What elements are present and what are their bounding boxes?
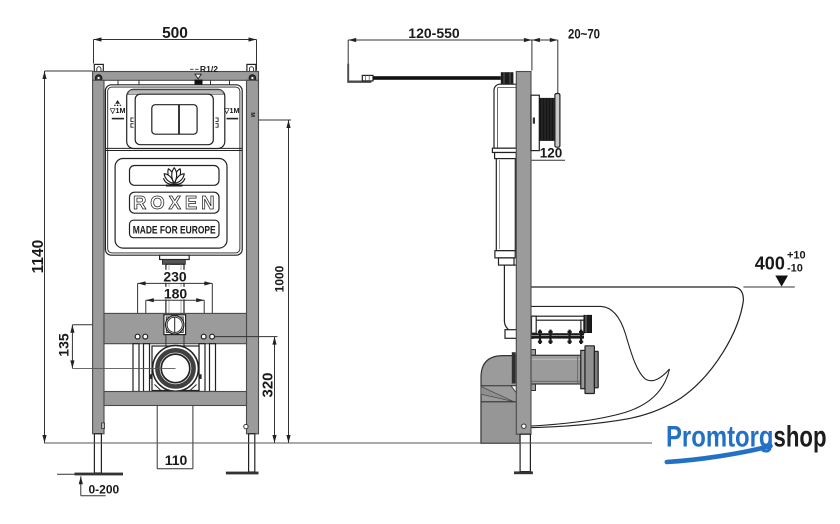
svg-text:shop: shop	[774, 420, 827, 453]
svg-text:+10: +10	[787, 249, 806, 261]
svg-text:ROXEN: ROXEN	[133, 192, 218, 213]
svg-text:135: 135	[56, 333, 72, 357]
svg-text:R1/2: R1/2	[200, 64, 218, 74]
svg-text:320: 320	[260, 372, 277, 397]
svg-text:▽1M: ▽1M	[109, 106, 126, 115]
svg-text:180: 180	[164, 285, 188, 301]
svg-text:0-200: 0-200	[89, 482, 120, 496]
svg-text:M: M	[249, 112, 255, 117]
svg-text:120: 120	[540, 146, 563, 161]
svg-text:20~70: 20~70	[568, 26, 600, 42]
svg-text:400: 400	[755, 254, 785, 274]
svg-text:▽1M: ▽1M	[223, 106, 240, 115]
svg-text:MADE FOR EUROPE: MADE FOR EUROPE	[133, 224, 216, 236]
svg-text:110: 110	[165, 452, 188, 468]
svg-text:1000: 1000	[273, 265, 287, 292]
svg-text:-10: -10	[787, 262, 803, 274]
svg-text:120-550: 120-550	[408, 25, 460, 41]
svg-text:230: 230	[163, 269, 187, 285]
